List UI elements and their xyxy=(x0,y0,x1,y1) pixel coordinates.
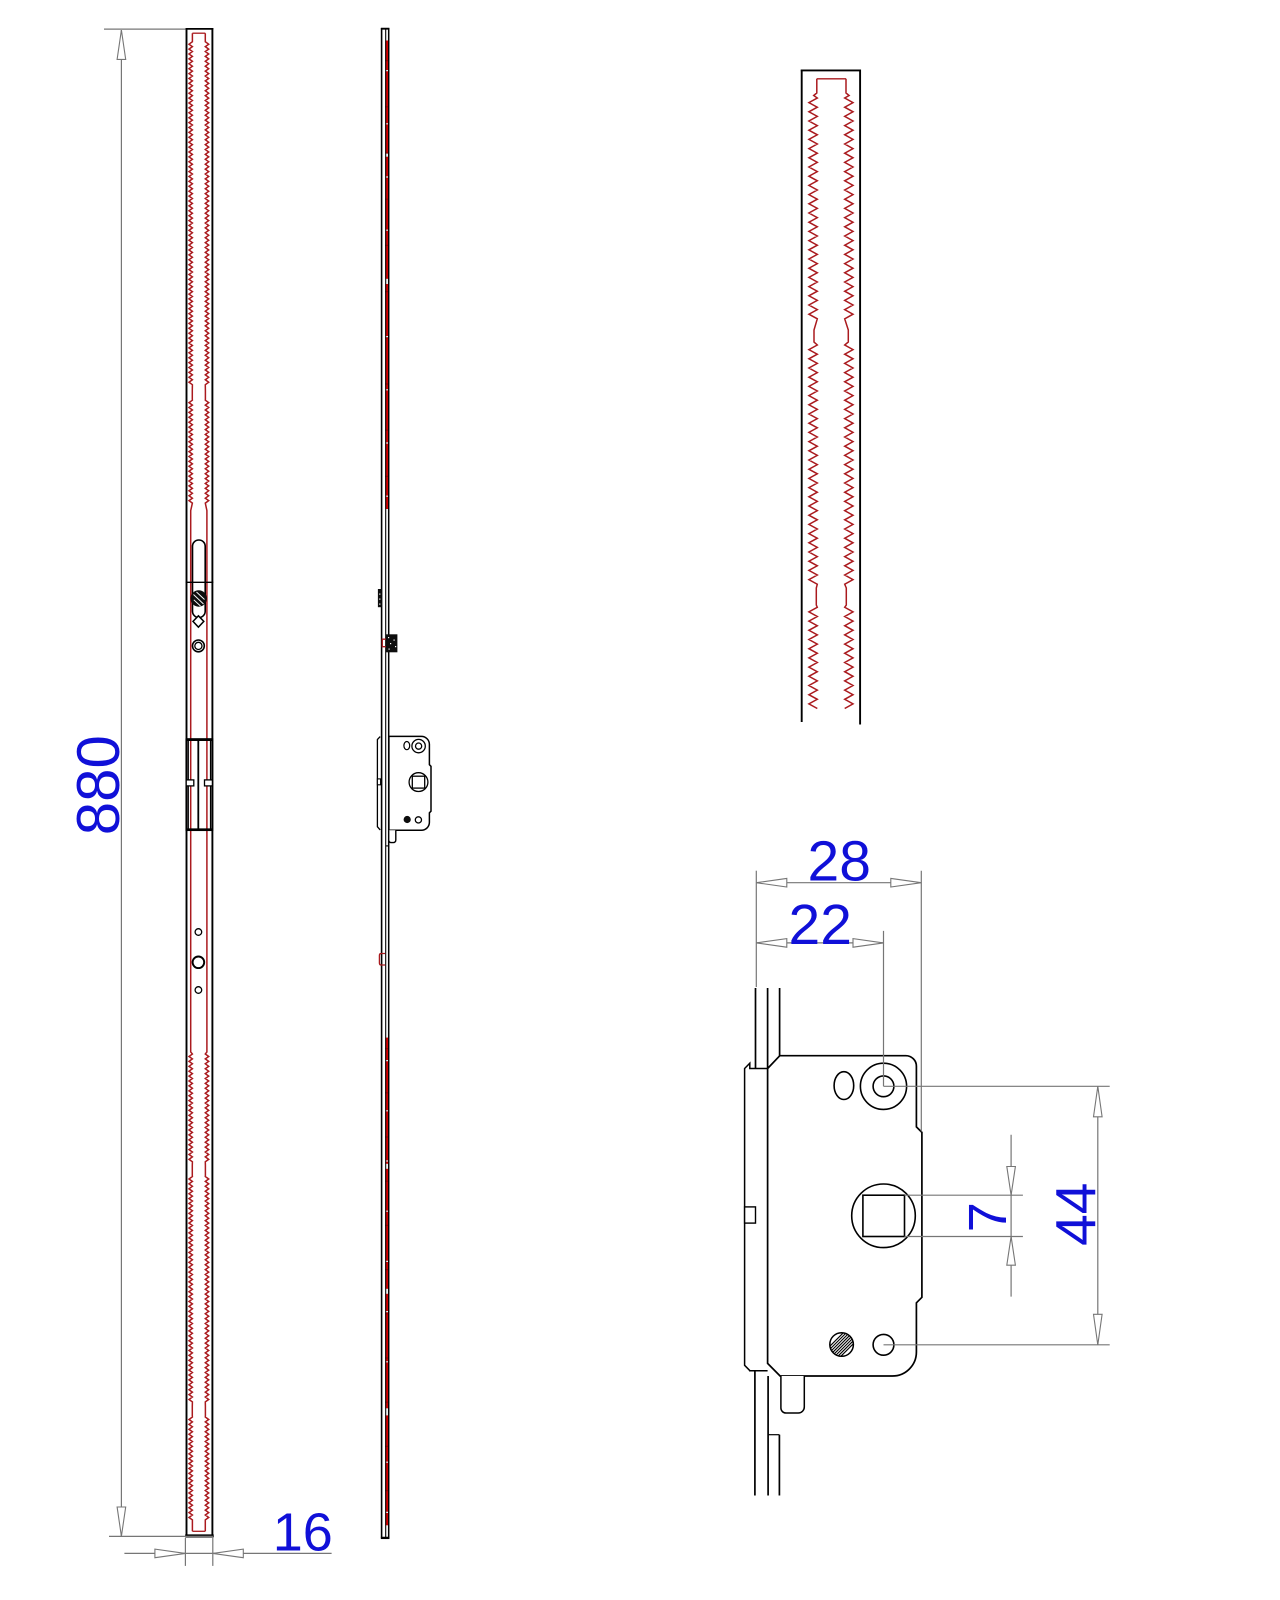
svg-text:7: 7 xyxy=(958,1202,1018,1232)
svg-text:880: 880 xyxy=(65,735,132,835)
svg-text:22: 22 xyxy=(789,893,852,957)
svg-text:16: 16 xyxy=(273,1503,333,1563)
svg-text:28: 28 xyxy=(808,830,871,894)
svg-text:44: 44 xyxy=(1044,1182,1108,1245)
